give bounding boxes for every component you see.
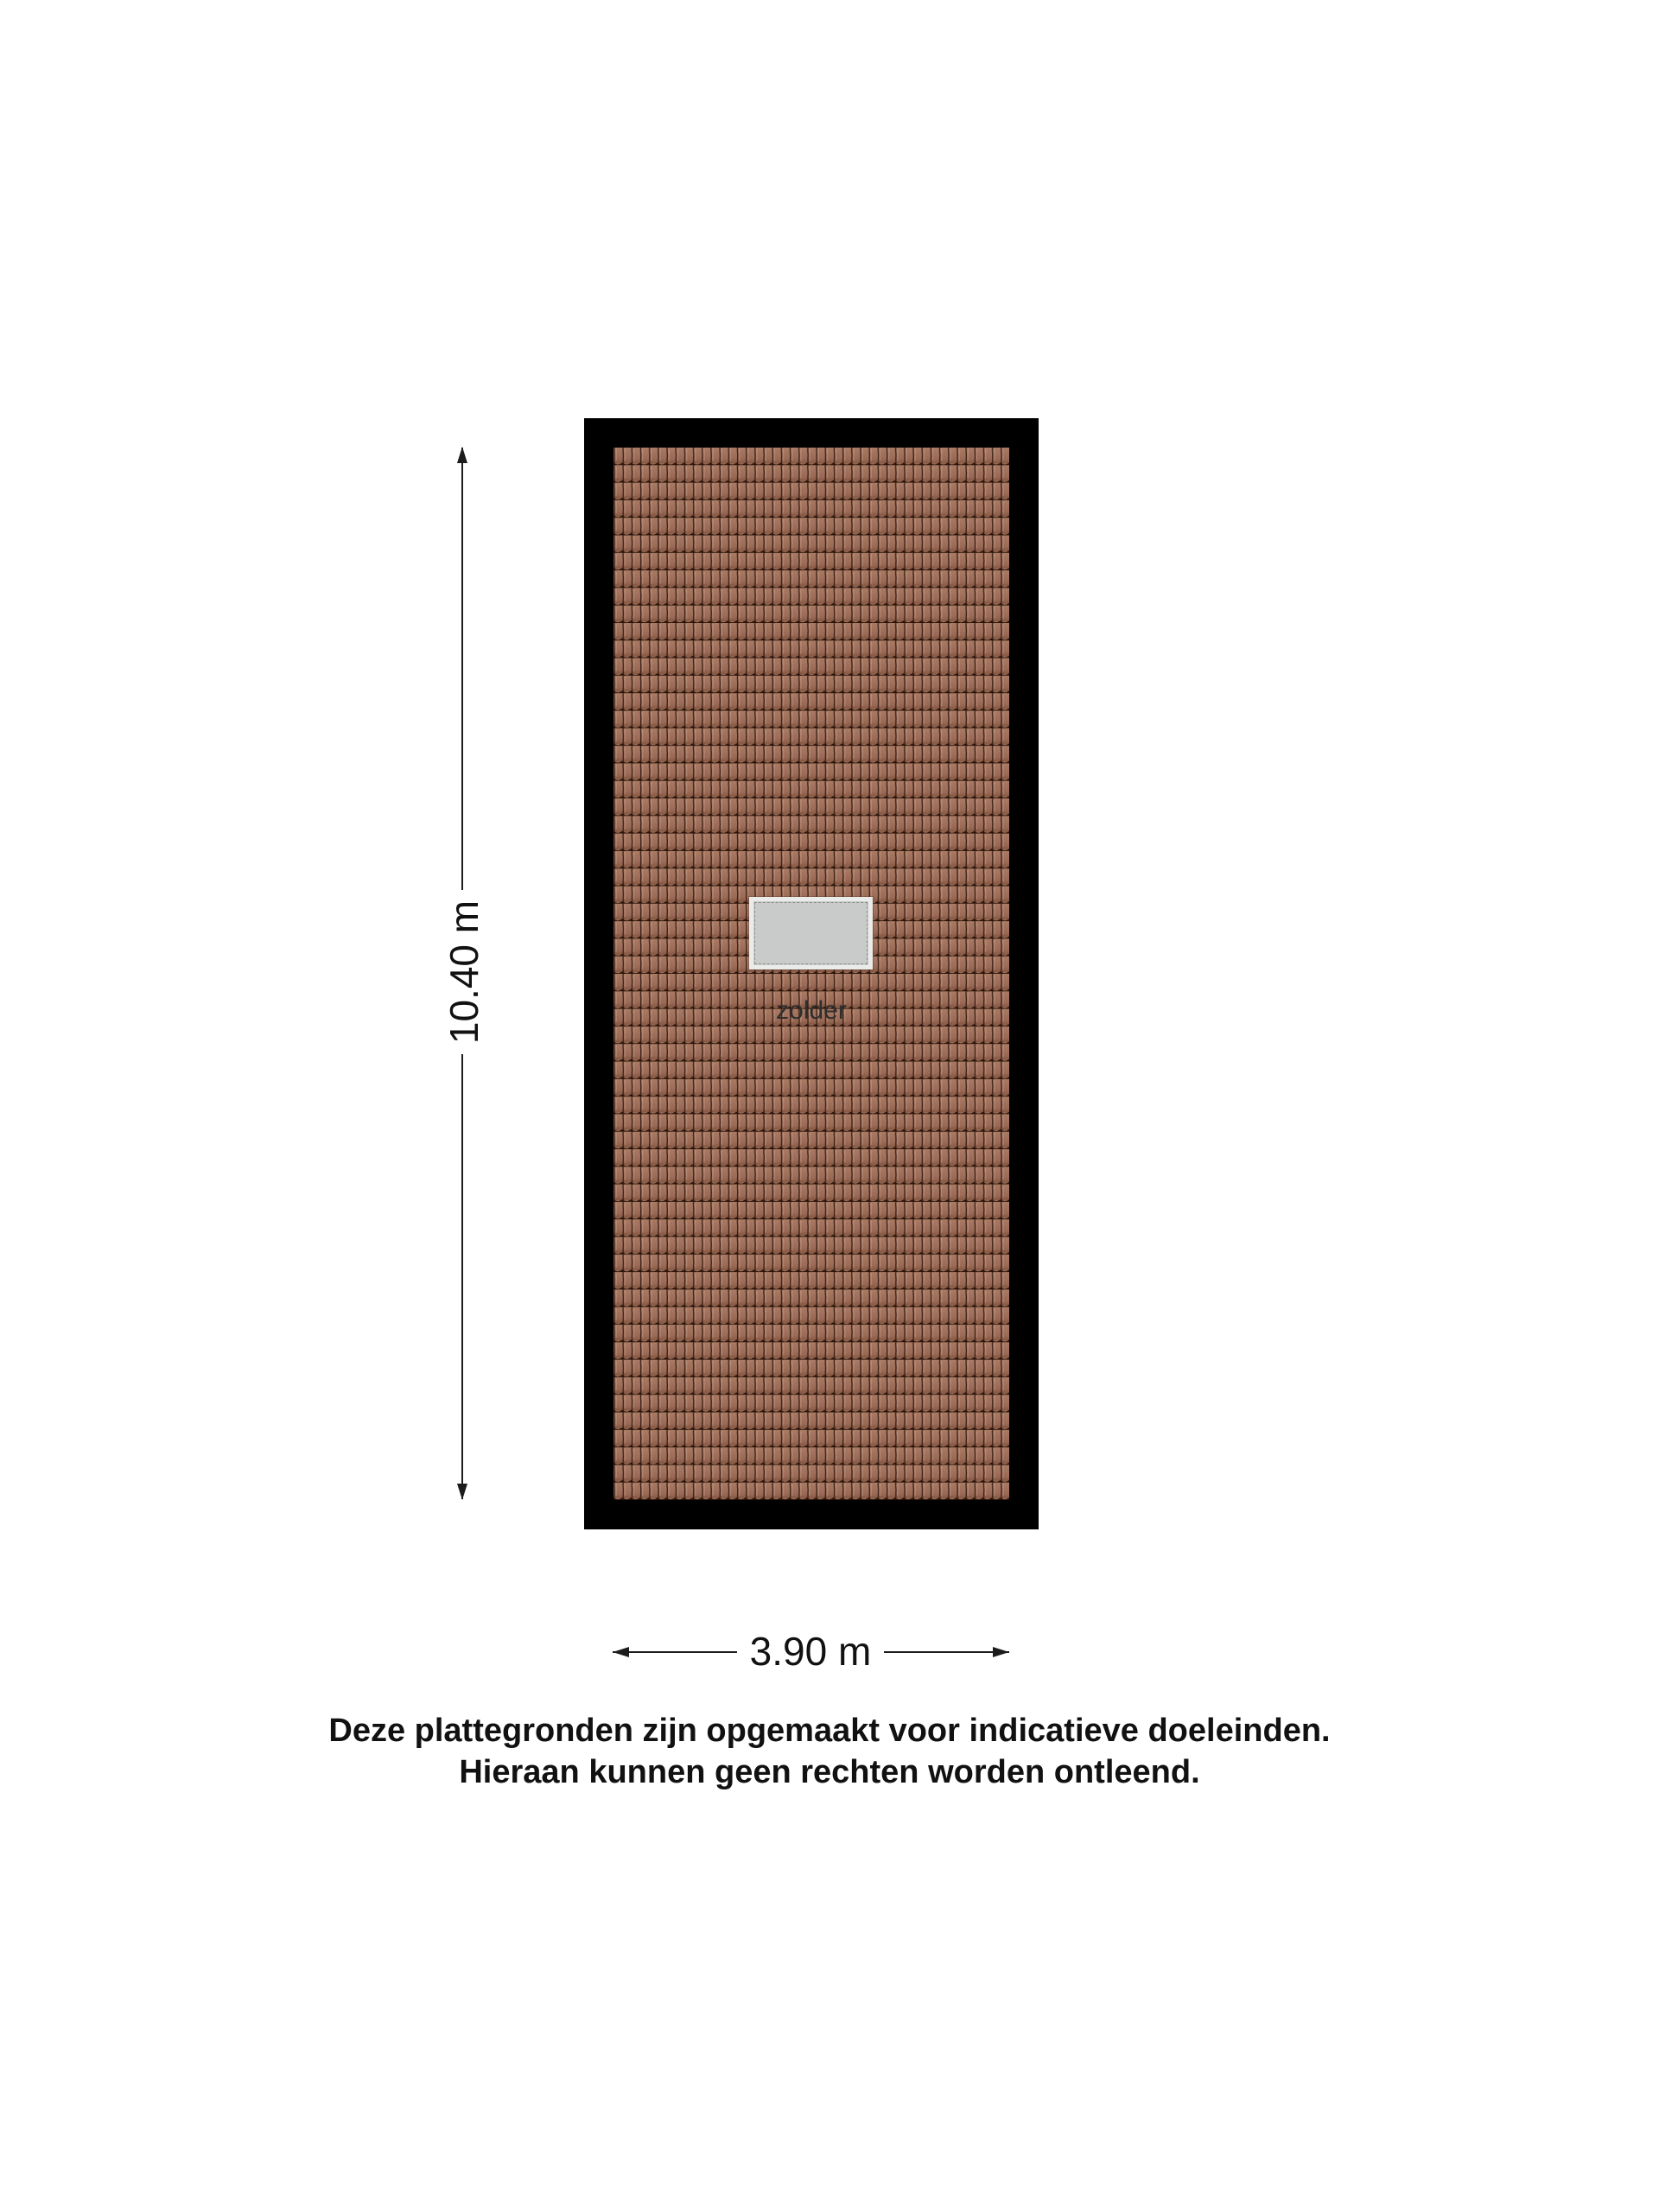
- horizontal-dimension-label: 3.90 m: [737, 1630, 884, 1673]
- room-label: zolder: [725, 996, 898, 1026]
- disclaimer: Deze plattegronden zijn opgemaakt voor i…: [0, 1710, 1659, 1793]
- floorplan-canvas: zolder 10.40 m 3.90 m Deze plattegronden…: [0, 0, 1659, 2212]
- vertical-dimension-label: 10.40 m: [443, 890, 485, 1054]
- arrow-right-icon: [993, 1647, 1009, 1657]
- arrow-up-icon: [457, 447, 467, 463]
- skylight-glass-pane: [754, 902, 868, 964]
- roof-outline: [584, 418, 1039, 1529]
- roof-tiles-texture: [613, 448, 1009, 1500]
- arrow-left-icon: [613, 1647, 629, 1657]
- skylight-window: [749, 897, 873, 969]
- disclaimer-line1: Deze plattegronden zijn opgemaakt voor i…: [0, 1710, 1659, 1751]
- disclaimer-line2: Hieraan kunnen geen rechten worden ontle…: [0, 1751, 1659, 1793]
- arrow-down-icon: [457, 1484, 467, 1500]
